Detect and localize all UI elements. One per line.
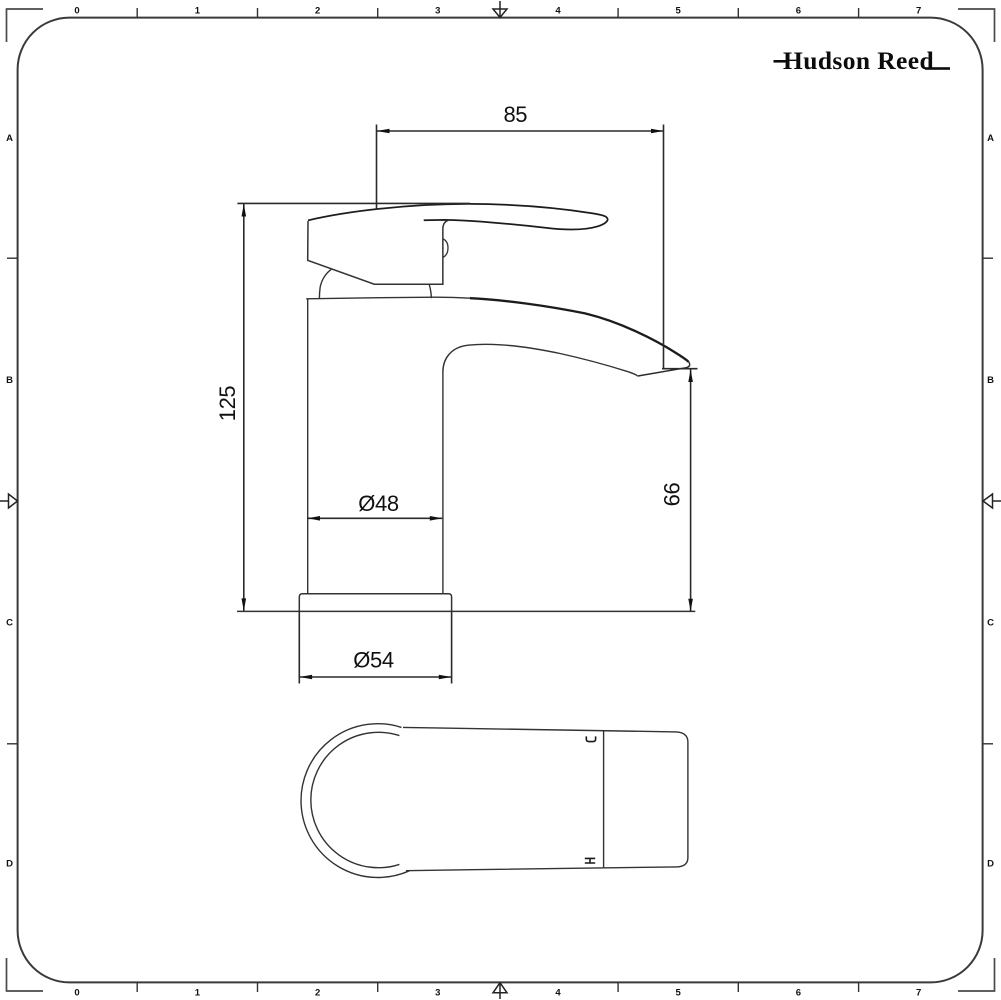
svg-text:85: 85 <box>503 102 527 127</box>
svg-text:66: 66 <box>660 483 685 507</box>
svg-text:4: 4 <box>555 6 561 17</box>
svg-text:C: C <box>6 618 13 629</box>
svg-text:D: D <box>6 859 13 870</box>
svg-text:D: D <box>987 859 994 870</box>
svg-text:Ø48: Ø48 <box>358 491 399 516</box>
svg-text:Ø54: Ø54 <box>353 648 394 673</box>
svg-text:A: A <box>987 133 994 144</box>
svg-text:0: 0 <box>74 6 79 17</box>
svg-text:7: 7 <box>916 6 921 17</box>
svg-text:3: 3 <box>435 6 440 17</box>
svg-text:6: 6 <box>796 988 801 999</box>
svg-text:7: 7 <box>916 988 921 999</box>
svg-text:B: B <box>6 375 13 386</box>
svg-text:B: B <box>987 375 994 386</box>
svg-text:C: C <box>987 618 994 629</box>
svg-text:125: 125 <box>215 386 240 422</box>
svg-text:Hudson Reed: Hudson Reed <box>783 46 934 75</box>
svg-text:0: 0 <box>74 988 79 999</box>
svg-text:1: 1 <box>195 6 201 17</box>
svg-text:2: 2 <box>315 988 320 999</box>
svg-text:5: 5 <box>676 6 682 17</box>
svg-text:3: 3 <box>435 988 440 999</box>
svg-text:2: 2 <box>315 6 320 17</box>
svg-text:5: 5 <box>676 988 682 999</box>
svg-text:4: 4 <box>555 988 561 999</box>
svg-text:1: 1 <box>195 988 201 999</box>
svg-text:A: A <box>6 133 13 144</box>
svg-text:6: 6 <box>796 6 801 17</box>
